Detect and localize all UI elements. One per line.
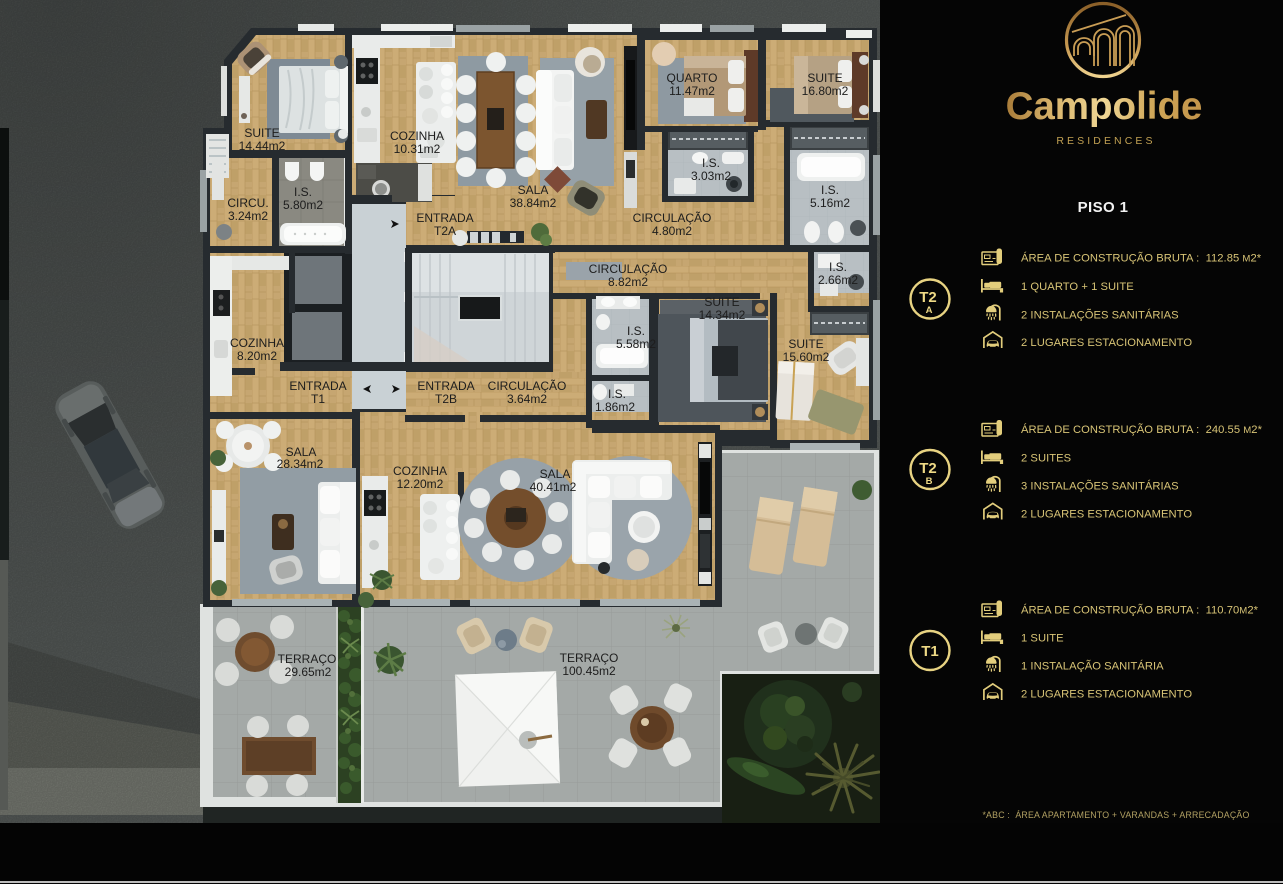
svg-text:1.86m2: 1.86m2 xyxy=(595,400,635,414)
svg-text:2 LUGARES ESTACIONAMENTO: 2 LUGARES ESTACIONAMENTO xyxy=(1021,689,1192,701)
svg-text:TERRAÇO: TERRAÇO xyxy=(278,652,337,666)
svg-text:3.24m2: 3.24m2 xyxy=(228,209,268,223)
svg-text:PISO 1: PISO 1 xyxy=(1078,199,1129,216)
svg-text:8.20m2: 8.20m2 xyxy=(237,349,277,363)
svg-text:QUARTO: QUARTO xyxy=(667,71,718,85)
svg-text:10.31m2: 10.31m2 xyxy=(394,142,441,156)
svg-text:3 INSTALAÇÕES SANITÁRIAS: 3 INSTALAÇÕES SANITÁRIAS xyxy=(1021,480,1179,493)
svg-text:28.34m2: 28.34m2 xyxy=(277,457,324,471)
svg-text:14.44m2: 14.44m2 xyxy=(239,139,286,153)
svg-text:38.84m2: 38.84m2 xyxy=(510,196,557,210)
svg-text:I.S.: I.S. xyxy=(829,260,847,274)
svg-text:5.58m2: 5.58m2 xyxy=(616,337,656,351)
svg-text:T1: T1 xyxy=(921,643,939,660)
svg-text:I.S.: I.S. xyxy=(702,156,720,170)
svg-text:ENTRADA: ENTRADA xyxy=(417,379,474,393)
svg-text:I.S.: I.S. xyxy=(608,387,626,401)
svg-text:RESIDENCES: RESIDENCES xyxy=(1056,135,1155,147)
svg-text:1 INSTALAÇÃO SANITÁRIA: 1 INSTALAÇÃO SANITÁRIA xyxy=(1021,660,1164,673)
svg-text:COZINHA: COZINHA xyxy=(390,129,444,143)
svg-text:T2B: T2B xyxy=(435,392,457,406)
svg-text:COZINHA: COZINHA xyxy=(230,336,284,350)
svg-text:ENTRADA: ENTRADA xyxy=(289,379,346,393)
svg-text:15.60m2: 15.60m2 xyxy=(783,350,830,364)
svg-text:3.03m2: 3.03m2 xyxy=(691,169,731,183)
svg-text:I.S.: I.S. xyxy=(821,183,839,197)
svg-text:2.66m2: 2.66m2 xyxy=(818,273,858,287)
svg-text:5.80m2: 5.80m2 xyxy=(283,198,323,212)
svg-text:TERRAÇO: TERRAÇO xyxy=(560,651,619,665)
svg-text:16.80m2: 16.80m2 xyxy=(802,84,849,98)
svg-text:2 LUGARES ESTACIONAMENTO: 2 LUGARES ESTACIONAMENTO xyxy=(1021,509,1192,521)
svg-text:11.47m2: 11.47m2 xyxy=(669,84,715,98)
svg-text:SALA: SALA xyxy=(540,467,571,481)
svg-text:T2: T2 xyxy=(919,289,937,306)
svg-text:5.16m2: 5.16m2 xyxy=(810,196,850,210)
svg-text:CIRCU.: CIRCU. xyxy=(227,196,268,210)
svg-text:ENTRADA: ENTRADA xyxy=(416,211,473,225)
svg-text:8.82m2: 8.82m2 xyxy=(608,275,648,289)
svg-text:40.41m2: 40.41m2 xyxy=(530,480,577,494)
svg-text:1 SUITE: 1 SUITE xyxy=(1021,633,1064,645)
svg-text:SUITE: SUITE xyxy=(788,337,823,351)
svg-text:100.45m2: 100.45m2 xyxy=(562,664,616,678)
svg-text:SUITE: SUITE xyxy=(244,126,279,140)
svg-text:COZINHA: COZINHA xyxy=(393,464,447,478)
svg-text:ÁREA DE CONSTRUÇÃO BRUTA : 11: ÁREA DE CONSTRUÇÃO BRUTA : 110.70M2* xyxy=(1021,604,1259,617)
svg-text:SUITE: SUITE xyxy=(807,71,842,85)
svg-text:2 INSTALAÇÕES SANITÁRIAS: 2 INSTALAÇÕES SANITÁRIAS xyxy=(1021,309,1179,322)
svg-text:ÁREA DE CONSTRUÇÃO BRUTA : 11: ÁREA DE CONSTRUÇÃO BRUTA : 112.85 M2* xyxy=(1021,252,1262,265)
svg-text:T1: T1 xyxy=(311,392,325,406)
svg-text:2 SUITES: 2 SUITES xyxy=(1021,453,1071,465)
svg-text:1 QUARTO + 1 SUITE: 1 QUARTO + 1 SUITE xyxy=(1021,281,1134,293)
svg-text:B: B xyxy=(926,476,933,487)
svg-text:4.80m2: 4.80m2 xyxy=(652,224,692,238)
svg-text:29.65m2: 29.65m2 xyxy=(285,665,332,679)
svg-text:CIRCULAÇÃO: CIRCULAÇÃO xyxy=(589,262,668,276)
svg-text:SUITE: SUITE xyxy=(704,295,739,309)
svg-text:ÁREA DE CONSTRUÇÃO BRUTA : 24: ÁREA DE CONSTRUÇÃO BRUTA : 240.55 M2* xyxy=(1021,423,1263,436)
svg-text:I.S.: I.S. xyxy=(294,185,312,199)
svg-text:CIRCULAÇÃO: CIRCULAÇÃO xyxy=(488,379,567,393)
svg-text:I.S.: I.S. xyxy=(627,324,645,338)
svg-text:2 LUGARES ESTACIONAMENTO: 2 LUGARES ESTACIONAMENTO xyxy=(1021,337,1192,349)
svg-text:T2A: T2A xyxy=(434,224,456,238)
svg-text:CIRCULAÇÃO: CIRCULAÇÃO xyxy=(633,211,712,225)
svg-text:3.64m2: 3.64m2 xyxy=(507,392,547,406)
svg-text:Campolide: Campolide xyxy=(1006,85,1203,128)
svg-text:*ABC : ÁREA APARTAMENTO + VAR: *ABC : ÁREA APARTAMENTO + VARANDAS + ARR… xyxy=(982,810,1249,820)
svg-text:T2: T2 xyxy=(919,460,937,477)
svg-text:SALA: SALA xyxy=(518,183,549,197)
svg-text:A: A xyxy=(926,305,933,316)
svg-text:12.20m2: 12.20m2 xyxy=(397,477,444,491)
svg-text:14.34m2: 14.34m2 xyxy=(699,308,746,322)
